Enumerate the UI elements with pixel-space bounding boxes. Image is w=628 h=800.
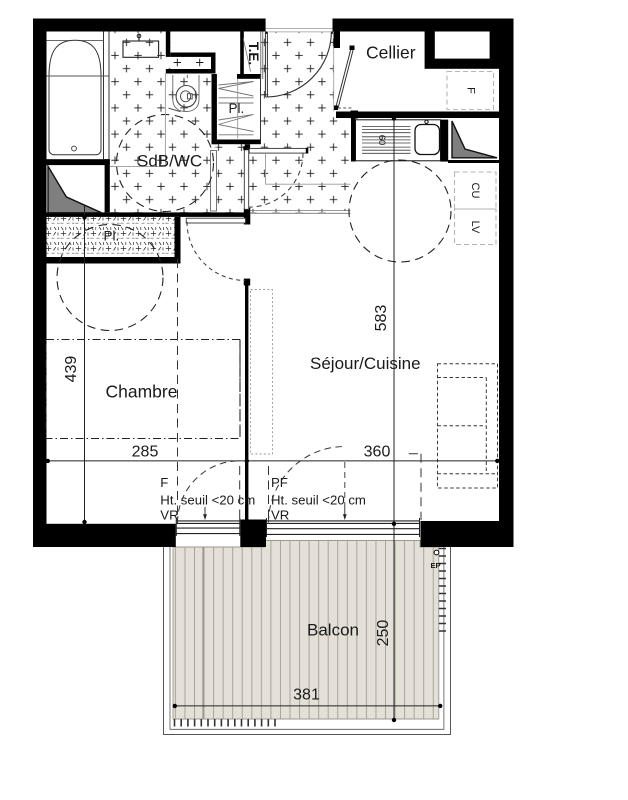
svg-text:F: F xyxy=(160,475,168,490)
svg-text:250: 250 xyxy=(375,620,392,647)
svg-text:CU: CU xyxy=(469,183,481,199)
svg-text:360: 360 xyxy=(364,443,391,460)
svg-text:Chambre: Chambre xyxy=(106,382,178,402)
svg-text:PF: PF xyxy=(271,475,288,490)
svg-text:Cellier: Cellier xyxy=(366,42,416,62)
svg-text:Pl.: Pl. xyxy=(229,101,245,116)
svg-text:EP: EP xyxy=(431,561,441,570)
svg-text:Ht. seuil <20 cm: Ht. seuil <20 cm xyxy=(160,493,255,508)
svg-text:T.E.: T.E. xyxy=(246,42,261,65)
svg-text:583: 583 xyxy=(373,305,390,332)
svg-text:Pl.: Pl. xyxy=(104,229,120,244)
svg-text:439: 439 xyxy=(63,356,80,383)
svg-text:LV: LV xyxy=(469,221,481,234)
svg-text:Ht. seuil <20 cm: Ht. seuil <20 cm xyxy=(271,493,366,508)
svg-text:VR: VR xyxy=(160,508,178,523)
svg-text:Séjour/Cuisine: Séjour/Cuisine xyxy=(310,354,421,373)
svg-text:VR: VR xyxy=(271,508,289,523)
svg-text:60: 60 xyxy=(376,135,387,146)
svg-text:F: F xyxy=(465,87,477,94)
svg-text:SdB/WC: SdB/WC xyxy=(137,151,202,170)
svg-text:381: 381 xyxy=(293,687,320,704)
svg-text:Balcon: Balcon xyxy=(307,621,359,640)
svg-text:285: 285 xyxy=(132,443,159,460)
